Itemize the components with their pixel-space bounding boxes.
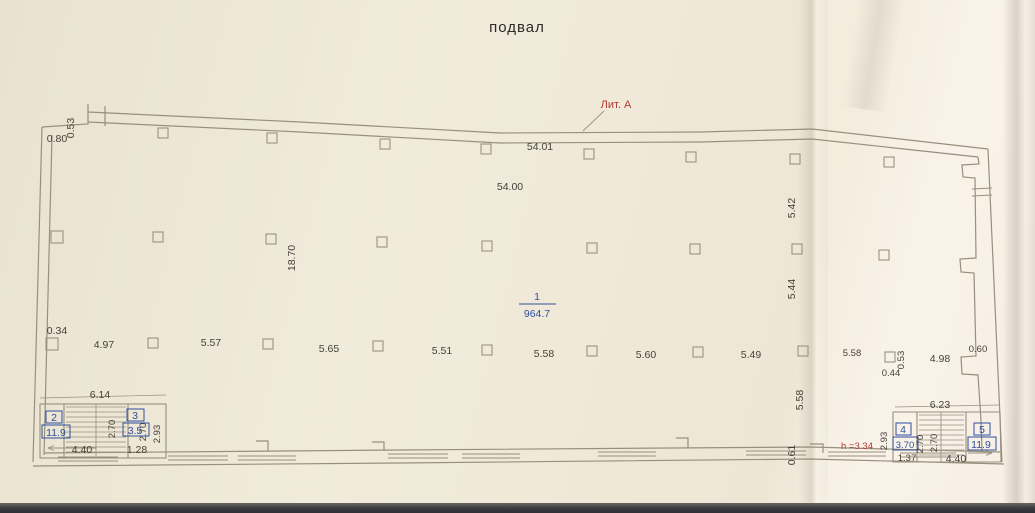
dim-label: 5.44 xyxy=(786,279,798,300)
dim-label: 5.51 xyxy=(432,345,453,357)
room1-number: 1 xyxy=(534,291,540,303)
right-wall-inner xyxy=(960,157,982,452)
dim-label: 4.97 xyxy=(94,339,115,351)
column-grid xyxy=(46,128,895,362)
dim-label: 5.58 xyxy=(843,348,862,359)
room3-area: 3.5 xyxy=(128,425,143,437)
dim-label: 0.60 xyxy=(969,344,988,355)
room5-number: 5 xyxy=(979,424,985,436)
floor-plan-drawing: подвал Лит. А h =3.34 0.80 0.53 54.01 54… xyxy=(0,0,1035,513)
dim-label: 2.93 xyxy=(152,425,163,444)
left-wall-inner xyxy=(44,135,52,455)
dim-label: 1.28 xyxy=(127,444,148,456)
photo-of-floor-plan: подвал Лит. А h =3.34 0.80 0.53 54.01 54… xyxy=(0,0,1035,513)
room5-area: 11.9 xyxy=(971,439,991,451)
dim-label: 0.34 xyxy=(47,325,68,337)
room2-area: 11.9 xyxy=(46,427,66,439)
dim-label: 5.65 xyxy=(319,343,340,355)
litera-leader-line xyxy=(583,111,604,131)
dim-label: 5.58 xyxy=(794,390,806,411)
room4-number: 4 xyxy=(900,424,906,436)
dim-label: 1.37 xyxy=(898,453,917,464)
dim-label: 0.61 xyxy=(786,445,798,466)
room3-number: 3 xyxy=(132,410,138,422)
dim-label: 5.42 xyxy=(786,198,798,219)
dim-label: 2.70 xyxy=(107,420,118,439)
room4-area: 3.70 xyxy=(896,440,915,451)
dim-label: 18.70 xyxy=(286,245,298,271)
dim-label: 6.14 xyxy=(90,389,111,401)
dim-label: 4.40 xyxy=(946,453,967,465)
dim-label: 6.23 xyxy=(930,399,951,411)
litera-label: Лит. А xyxy=(601,99,632,111)
dim-label: 0.53 xyxy=(65,118,77,139)
dim-label: 2.70 xyxy=(929,434,940,453)
dim-label: 2.93 xyxy=(879,432,890,451)
height-note: h =3.34 xyxy=(841,441,873,452)
left-wall xyxy=(33,127,42,462)
dim-label: 5.58 xyxy=(534,348,555,360)
dim-label: 5.57 xyxy=(201,337,222,349)
dim-label: 4.98 xyxy=(930,353,951,365)
page-title: подвал xyxy=(489,19,545,36)
labels: подвал Лит. А h =3.34 0.80 0.53 54.01 54… xyxy=(46,19,991,465)
room2-number: 2 xyxy=(51,412,57,424)
dim-label: 2.70 xyxy=(915,435,926,454)
dim-label: 5.49 xyxy=(741,349,762,361)
dim-label: 54.01 xyxy=(527,141,553,153)
dim-label: 5.60 xyxy=(636,349,657,361)
dim-label: 4.40 xyxy=(72,444,93,456)
dim-label: 54.00 xyxy=(497,181,523,193)
dim-label: 0.53 xyxy=(896,351,907,370)
photo-edge-shadow xyxy=(0,503,1035,513)
building-walls xyxy=(33,104,1004,466)
room1-area: 964.7 xyxy=(524,308,550,320)
